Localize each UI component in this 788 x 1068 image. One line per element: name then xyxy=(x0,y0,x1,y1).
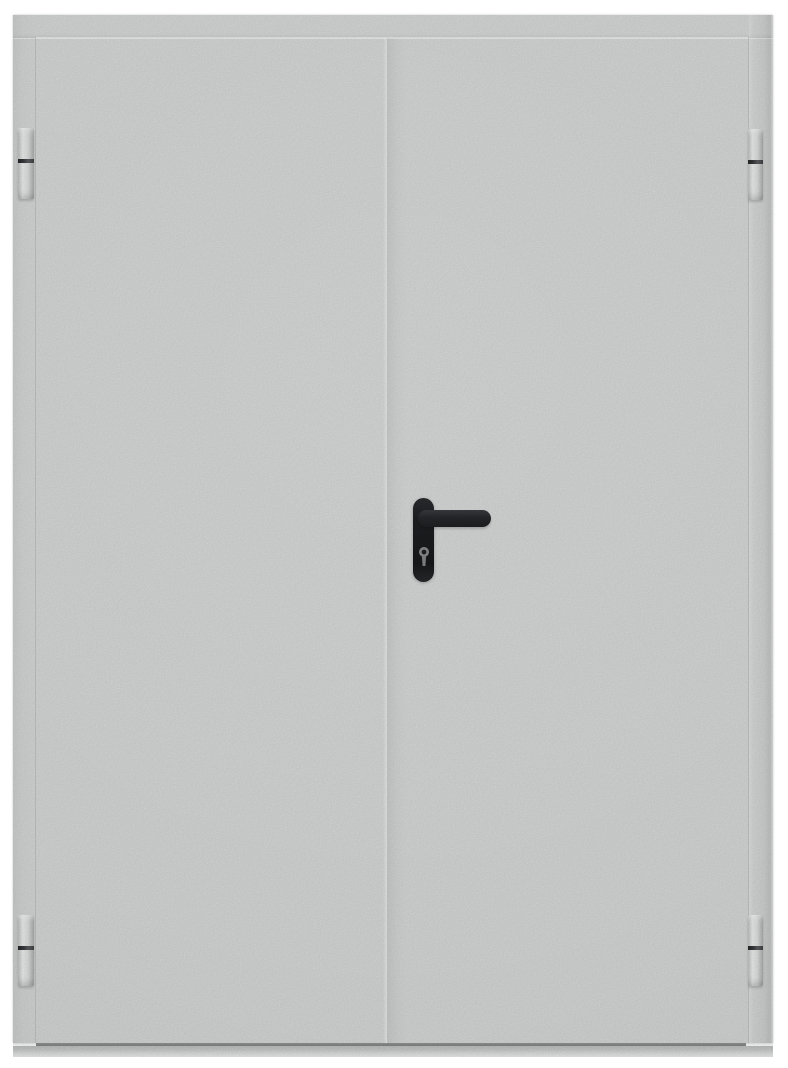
door-leaf-right xyxy=(387,38,749,1043)
hinge-bottom-right xyxy=(748,915,763,986)
door-leaf-left xyxy=(36,38,386,1043)
lever-handle xyxy=(418,510,491,527)
hinge-bottom-left xyxy=(18,915,34,986)
door-frame-top xyxy=(13,15,773,39)
product-photo xyxy=(0,0,788,1068)
center-seam xyxy=(386,38,387,1043)
hinge-top-right xyxy=(748,129,763,200)
threshold-shadow xyxy=(13,1046,773,1057)
leaf-edge-line-left xyxy=(35,38,36,1043)
leaf-top-gap-line xyxy=(36,37,748,38)
keyhole-icon xyxy=(416,545,433,569)
hinge-top-left xyxy=(18,128,34,199)
